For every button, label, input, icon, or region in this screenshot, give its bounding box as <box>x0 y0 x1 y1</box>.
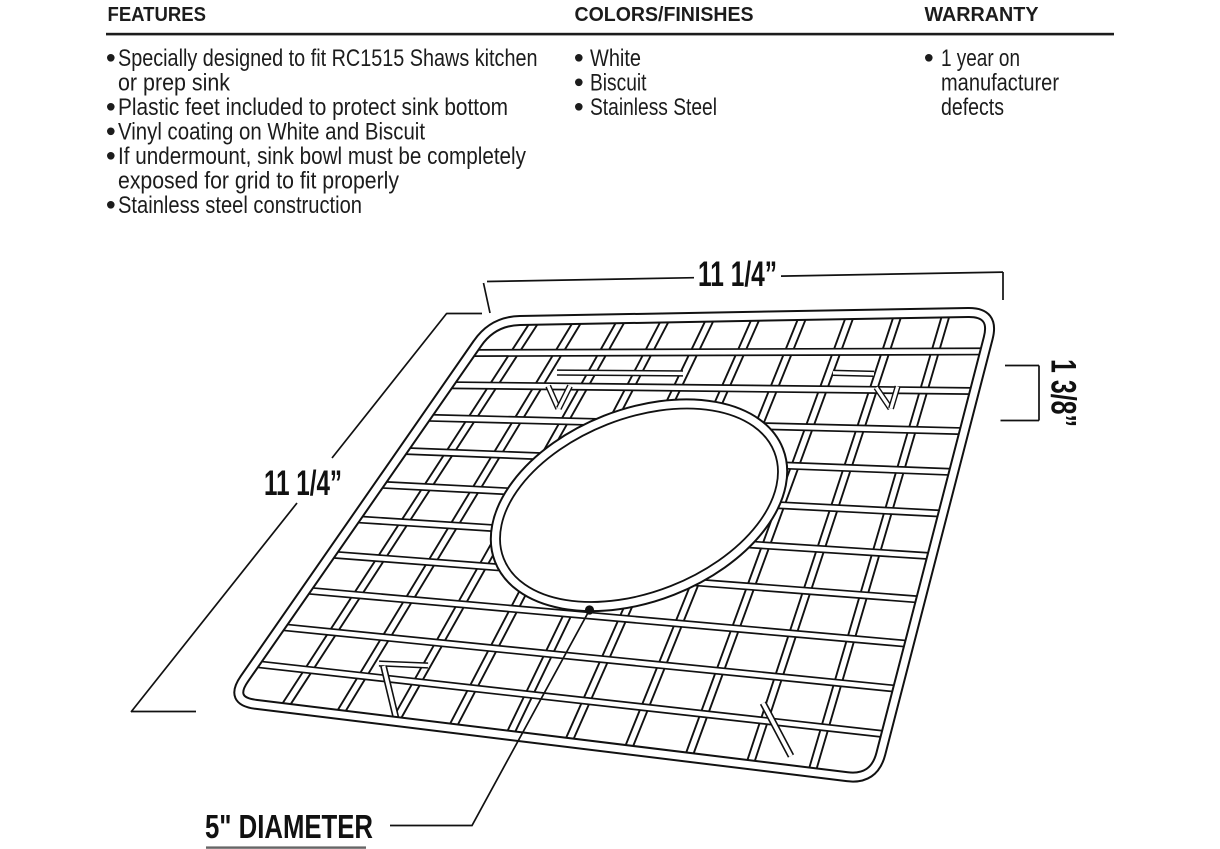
svg-text:Biscuit: Biscuit <box>590 70 647 97</box>
svg-text:White: White <box>590 45 641 72</box>
svg-text:defects: defects <box>941 94 1004 121</box>
svg-text:1 3/8”: 1 3/8” <box>1044 359 1083 427</box>
svg-text:11 1/4”: 11 1/4” <box>698 255 777 294</box>
svg-text:Vinyl coating on White and Bis: Vinyl coating on White and Biscuit <box>118 119 425 146</box>
svg-text:5" DIAMETER: 5" DIAMETER <box>205 808 373 845</box>
svg-text:11 1/4”: 11 1/4” <box>264 464 342 503</box>
svg-text:Stainless steel construction: Stainless steel construction <box>118 192 362 219</box>
svg-text:WARRANTY: WARRANTY <box>925 4 1040 26</box>
svg-text:If undermount, sink bowl must: If undermount, sink bowl must be complet… <box>118 143 526 170</box>
svg-text:Stainless Steel: Stainless Steel <box>590 94 717 121</box>
svg-text:1 year on: 1 year on <box>941 45 1020 72</box>
svg-text:FEATURES: FEATURES <box>108 4 207 26</box>
svg-text:Specially designed to fit RC15: Specially designed to fit RC1515 Shaws k… <box>118 45 538 72</box>
svg-text:Plastic feet included to prote: Plastic feet included to protect sink bo… <box>118 94 508 121</box>
svg-text:manufacturer: manufacturer <box>941 70 1059 97</box>
svg-text:COLORS/FINISHES: COLORS/FINISHES <box>575 4 754 26</box>
svg-text:exposed for grid to fit proper: exposed for grid to fit properly <box>118 168 399 195</box>
svg-text:or prep sink: or prep sink <box>118 70 231 97</box>
